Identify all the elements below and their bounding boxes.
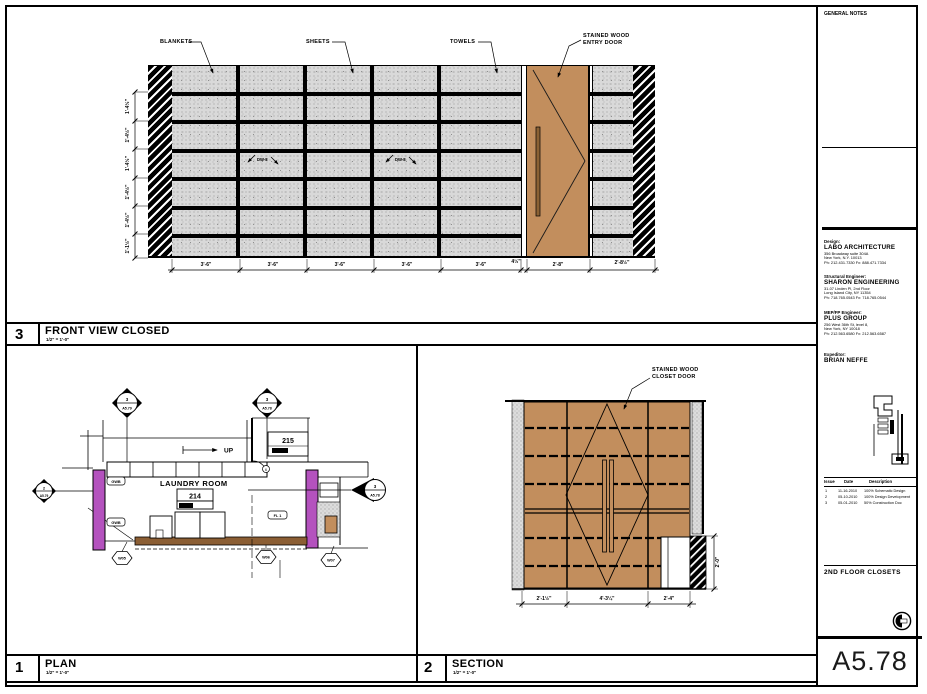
shelf <box>172 177 521 181</box>
svg-text:DW-8: DW-8 <box>395 157 406 162</box>
svg-text:A5.79: A5.79 <box>122 407 132 411</box>
shelf <box>172 92 521 96</box>
dw-tag: DW-8 <box>384 148 424 170</box>
wall-tag-w05: W05 <box>112 542 132 565</box>
view-scale: 1/2" = 1'-0" <box>46 337 69 342</box>
svg-text:GWB: GWB <box>111 480 121 484</box>
dim: 1'-4½" <box>124 155 131 171</box>
plan-appliances <box>150 512 225 538</box>
dim: 1'-1½" <box>124 238 131 254</box>
divider <box>445 654 447 681</box>
door-panel-graphics <box>527 66 588 257</box>
shelf <box>172 120 521 124</box>
svg-text:4'-3¼": 4'-3¼" <box>600 595 616 602</box>
shelf <box>172 206 521 210</box>
gwb-tag: GWB <box>107 477 125 485</box>
tb-rule <box>824 565 916 566</box>
svg-text:W06: W06 <box>262 556 270 560</box>
divider <box>38 322 40 345</box>
svg-text:A5.79: A5.79 <box>40 494 49 498</box>
key-map <box>852 390 916 476</box>
plan-right-closet <box>317 483 340 537</box>
view-scale: 1/2" = 1'-0" <box>453 670 476 675</box>
svg-text:2'-0": 2'-0" <box>715 556 721 567</box>
svg-text:2'-1½": 2'-1½" <box>537 595 553 602</box>
shelf <box>590 92 633 96</box>
section-base-hatch <box>690 536 706 589</box>
gwb-tag: GWB <box>107 518 125 526</box>
dim: 2'-8" <box>553 262 564 268</box>
section-view: 2'-1½" 4'-3¼" 2'-4" 2'-0" <box>480 360 730 615</box>
section-marker-4: 2 A5.79 <box>32 479 93 503</box>
svg-text:FL 1: FL 1 <box>274 514 282 518</box>
rev-desc: 100% Design Development <box>864 495 910 499</box>
section-wall-left <box>512 400 524 590</box>
rev-date: 05-01-2010 <box>838 501 857 505</box>
dw-tag: DW-8 <box>246 148 286 170</box>
plan-wood-closet-band <box>135 537 307 549</box>
label-closet-door: STAINED WOOD CLOSET DOOR <box>652 367 699 381</box>
expeditor: Expeditor: BRIAN NEFFE <box>824 352 916 365</box>
tb-rule <box>818 636 922 639</box>
titleblock-separator <box>816 5 818 687</box>
view-title: FRONT VIEW CLOSED <box>45 325 170 337</box>
dim: 3'-6" <box>201 262 212 268</box>
room-name: LAUNDRY ROOM <box>160 479 228 488</box>
svg-text:2'-4": 2'-4" <box>664 596 675 602</box>
dim: 1'-4½" <box>124 127 131 143</box>
dim: 3'-6" <box>476 262 487 268</box>
dim: 2'-8½" <box>615 259 631 266</box>
wall-tag-w06: W06 <box>256 545 276 564</box>
sheet-title: 2ND FLOOR CLOSETS <box>824 569 901 576</box>
rev-date: 05-10-2010 <box>838 495 857 499</box>
shelf <box>590 177 633 181</box>
divider <box>5 322 817 324</box>
dim: 1'-4½" <box>124 98 131 114</box>
general-notes-label: GENERAL NOTES <box>824 11 916 17</box>
rev-date: 11-16-2010 <box>838 489 857 493</box>
wall-tag-w07: W07 <box>321 546 341 567</box>
tb-rule <box>822 147 918 148</box>
rev-desc: 100% Schematic Design <box>864 489 905 493</box>
rev-no: 3 <box>825 501 827 505</box>
room-215-tag: 215 <box>268 432 308 456</box>
shelf <box>590 234 633 238</box>
divider <box>5 654 817 656</box>
plan-view: 214 215 6 GWB GWB FL 1 <box>30 382 422 596</box>
dim: 1'-4½" <box>124 212 131 228</box>
front-dims-bottom: 3'-6" 3'-6" 3'-6" 3'-6" 3'-6" 4½" 2'-8" … <box>130 256 670 282</box>
plan-shelf-band <box>107 462 267 477</box>
dim: 3'-6" <box>268 262 279 268</box>
svg-text:A5.78: A5.78 <box>370 494 380 498</box>
section-dims-bottom: 2'-1½" 4'-3¼" 2'-4" <box>516 591 696 608</box>
divider <box>5 344 817 346</box>
drawing-sheet: BLANKETS SHEETS TOWELS STAINED WOOD ENTR… <box>0 0 927 694</box>
svg-text:W07: W07 <box>327 559 335 563</box>
section-dim-right: 2'-0" <box>706 534 721 592</box>
sheet-number: A5.78 <box>818 646 922 677</box>
view-number: 2 <box>424 659 432 676</box>
design-firm: Design: LABO ARCHITECTURE 356 Broadway s… <box>824 239 916 266</box>
dim: 3'-6" <box>335 262 346 268</box>
wall-hatch-right <box>633 66 655 257</box>
svg-text:W05: W05 <box>118 557 126 561</box>
svg-text:A5.78: A5.78 <box>262 407 272 411</box>
view-title: PLAN <box>45 658 77 670</box>
dim: 1'-4½" <box>124 184 131 200</box>
svg-text:6: 6 <box>265 468 267 472</box>
svg-text:GWB: GWB <box>111 521 121 525</box>
shelf <box>172 234 521 238</box>
svg-text:214: 214 <box>189 494 201 501</box>
view-scale: 1/2" = 1'-0" <box>46 670 69 675</box>
front-dims-left: 1'-4½" 1'-4½" 1'-4½" 1'-4½" 1'-4½" 1'-1½… <box>116 84 152 266</box>
plan-wall-purple-left <box>93 470 105 550</box>
door-pull <box>536 127 540 216</box>
rev-header: Issue <box>824 479 835 484</box>
shelf <box>172 149 521 153</box>
svg-text:215: 215 <box>282 438 294 445</box>
rev-no: 2 <box>825 495 827 499</box>
mep-firm: MEP/FP Engineer: PLUS GROUP 256 West 36t… <box>824 310 916 337</box>
tb-rule <box>824 486 916 487</box>
room-214-tag: 214 <box>177 489 213 509</box>
approval-stamp-icon <box>892 611 912 631</box>
svg-text:UP: UP <box>224 448 234 455</box>
section-base-cabinet <box>661 537 690 588</box>
divider <box>38 654 40 681</box>
dim: 3'-6" <box>402 262 413 268</box>
plan-wall-purple-right <box>306 470 318 548</box>
section-marker-1: 3 A5.79 <box>112 388 142 462</box>
view-number: 1 <box>15 659 23 676</box>
tb-rule <box>822 227 918 230</box>
rev-no: 1 <box>825 489 827 493</box>
rev-desc: 50% Construction Doc <box>864 501 902 505</box>
up-arrow: UP <box>183 446 234 455</box>
rev-header: Date <box>844 479 853 484</box>
tb-rule <box>824 477 916 478</box>
shelf <box>590 120 633 124</box>
section-wall-right <box>692 402 702 534</box>
structural-firm: Structural Engineer: SHARON ENGINEERING … <box>824 274 916 301</box>
dim: 4½" <box>511 258 521 265</box>
leader-lines <box>140 30 670 90</box>
view-title: SECTION <box>452 658 504 670</box>
divider <box>5 681 817 683</box>
fl-tag: FL 1 <box>268 511 287 519</box>
rev-header: Description <box>869 479 892 484</box>
shelf <box>590 149 633 153</box>
shelf <box>590 206 633 210</box>
svg-text:DW-8: DW-8 <box>257 157 268 162</box>
view-number: 3 <box>15 326 23 343</box>
